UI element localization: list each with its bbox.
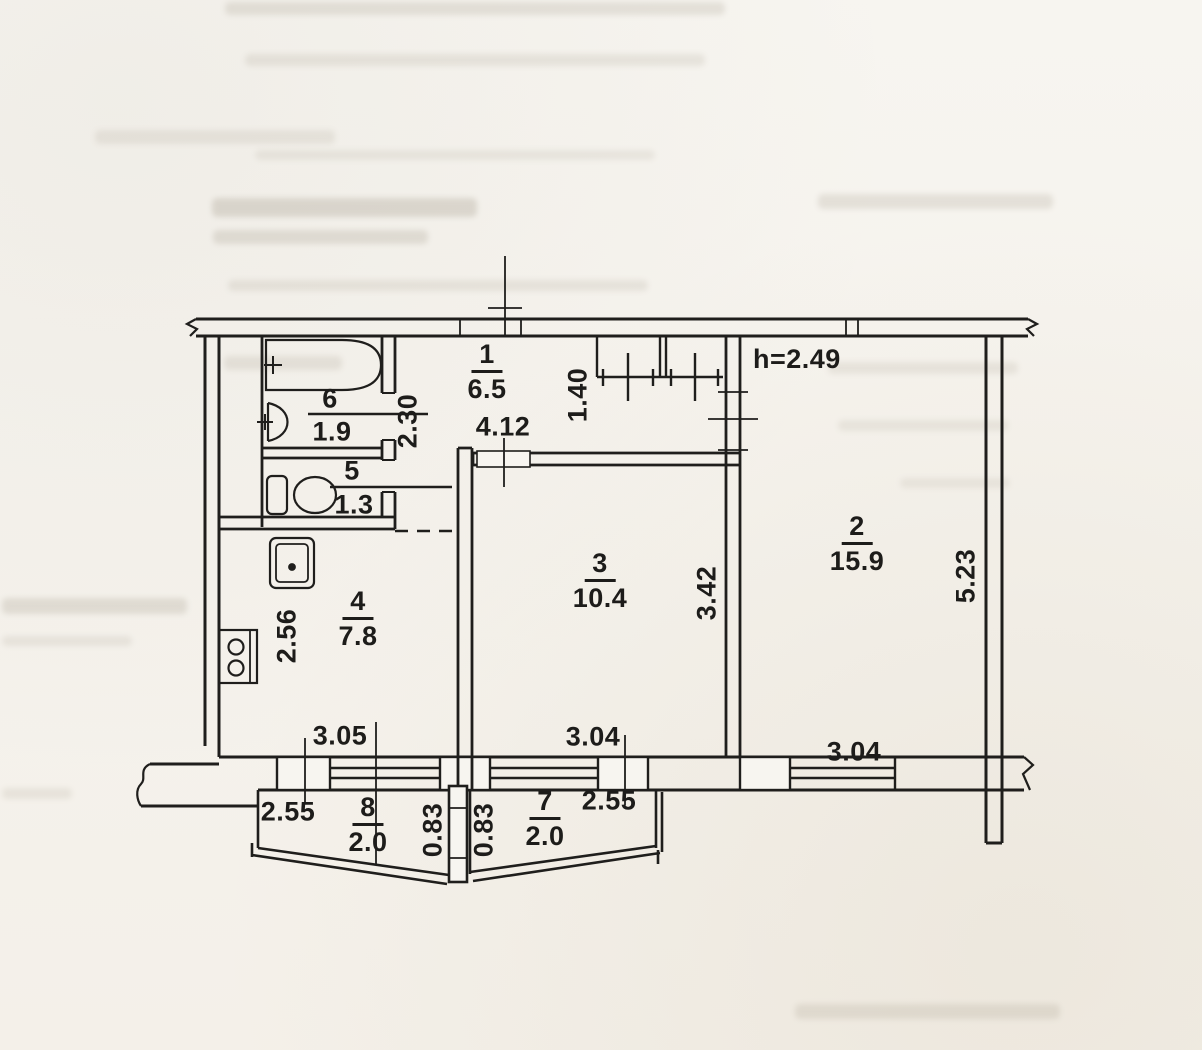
dim-kitchen-depth: 2.56 (272, 609, 303, 664)
room-area: 2.0 (348, 826, 387, 856)
stove-icon (219, 630, 257, 683)
room-area: 10.4 (573, 582, 628, 612)
room-4-label: 4 7.8 (338, 587, 377, 651)
built-in-closet-symbol (597, 336, 723, 401)
room3-window (490, 768, 598, 778)
dim-hall-length: 4.12 (476, 412, 531, 443)
washbasin-faucet-icon (257, 414, 273, 430)
room-area: 15.9 (830, 545, 885, 575)
room-number: 4 (342, 587, 374, 620)
interior-walls (219, 336, 758, 790)
floor-plan-page: 1 6.5 2 15.9 3 10.4 4 7.8 7 2.0 8 2.0 6 … (0, 0, 1202, 1050)
dim-balcony7-depth: 0.83 (469, 803, 500, 858)
wall-break-mark (137, 764, 150, 806)
kitchen-window (330, 768, 440, 778)
kitchen-sink-icon (270, 538, 314, 588)
room-number: 7 (529, 787, 561, 820)
dim-room2-window: 3.04 (827, 737, 882, 768)
room-area: 6.5 (467, 373, 506, 403)
floor-plan-drawing (0, 0, 1202, 1050)
room3-room2-wall (726, 336, 740, 757)
wall-break-mark (187, 319, 197, 336)
bath-toilet-divider-wall (262, 448, 382, 458)
room-number: 8 (352, 793, 384, 826)
dim-balcony8-depth: 0.83 (418, 803, 449, 858)
ceiling-height-note: h=2.49 (753, 344, 841, 375)
toilet-icon (267, 476, 336, 514)
room-8-label: 8 2.0 (348, 793, 387, 857)
window-jamb (277, 757, 330, 790)
dim-room3-window: 3.04 (566, 722, 621, 753)
dim-balcony8-width: 2.55 (261, 797, 316, 828)
balcony-divider-post (449, 786, 467, 882)
dim-balcony7-width: 2.55 (582, 786, 637, 817)
dim-room2-depth: 5.23 (951, 549, 982, 604)
room-1-label: 1 6.5 (467, 340, 506, 404)
window-jamb (740, 757, 790, 790)
room-number: 1 (471, 340, 503, 373)
room-area: 7.8 (338, 620, 377, 650)
bathtub-icon (266, 340, 381, 390)
dim-room3-depth: 3.42 (692, 566, 723, 621)
room-7-label: 7 2.0 (525, 787, 564, 851)
dim-closet-width: 1.40 (563, 368, 594, 423)
room-number: 3 (584, 549, 616, 582)
room-area: 2.0 (525, 820, 564, 850)
room-5-area: 1.3 (334, 490, 373, 521)
room-number: 2 (841, 512, 873, 545)
room-6-area: 1.9 (312, 417, 351, 448)
room-5-number: 5 (344, 456, 360, 487)
dim-kitchen-window: 3.05 (313, 721, 368, 752)
wall-break-mark (1027, 319, 1037, 336)
room-2-label: 2 15.9 (830, 512, 885, 576)
wall-break-mark (1023, 757, 1033, 790)
kitchen-room3-wall (458, 448, 472, 790)
room-6-number: 6 (322, 384, 338, 415)
dim-bath-block-depth: 2.30 (393, 394, 424, 449)
room-3-label: 3 10.4 (573, 549, 628, 613)
